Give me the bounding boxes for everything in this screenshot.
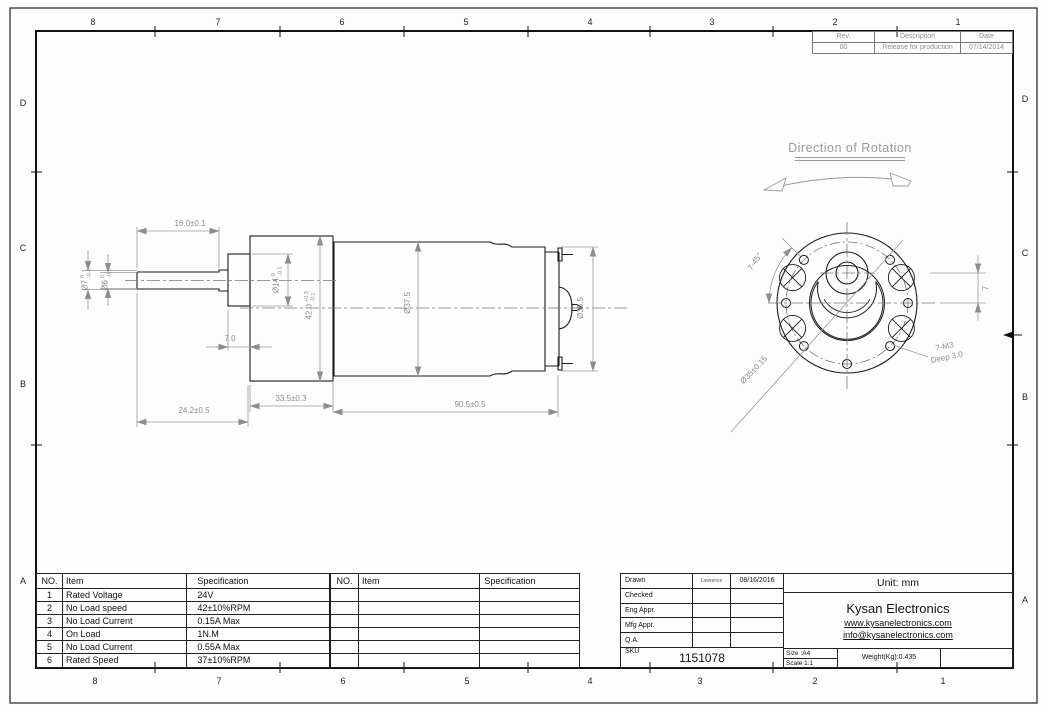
spec-no: 1: [37, 589, 63, 601]
svg-text:Ø37.5: Ø37.5: [403, 292, 412, 314]
svg-text:Ø35±0.15: Ø35±0.15: [738, 354, 769, 386]
table-row-empty: [331, 641, 579, 654]
grid-row-right: A: [1022, 595, 1028, 605]
approval-label: Checked: [621, 589, 693, 603]
svg-text:0: 0: [80, 275, 86, 278]
direction-underline: [795, 158, 905, 161]
dim-shaft-length: 16.0±0.1: [174, 219, 206, 228]
spec-header-item: Item: [359, 574, 480, 588]
spec-no: 5: [37, 641, 63, 653]
spec-header-spec: Specification: [480, 574, 579, 588]
approval-label: Eng Appr.: [621, 604, 693, 618]
dim-bolt-circle: Ø35±0.15: [738, 354, 769, 386]
direction-of-rotation: Direction of Rotation: [764, 141, 912, 191]
spec-value: 0.55A Max: [187, 641, 329, 653]
dim-boss-diameter: Ø14 0 -0.1: [271, 267, 284, 294]
svg-text:Ø7: Ø7: [81, 279, 90, 290]
approval-name: [693, 633, 731, 647]
front-view: [768, 222, 935, 390]
approval-row: Checked: [621, 589, 783, 604]
svg-text:-0.1: -0.1: [107, 269, 113, 278]
approval-row: Q.A.: [621, 633, 783, 648]
table-row-empty: [331, 602, 579, 615]
spec-item: No Load Current: [63, 615, 187, 627]
approval-name: Lawrence: [693, 574, 731, 588]
dim-front-length: 24.2±0.5: [178, 406, 210, 415]
grid-col-top: 3: [709, 17, 714, 27]
revision-header-date: Date: [961, 32, 1012, 42]
side-view: [125, 236, 630, 381]
dim-tap-callout: 7-M3 Deep 3.0: [928, 339, 964, 365]
revision-table: Rev. Description Date 00 Release for pro…: [812, 31, 1013, 54]
dim-hole-pattern-angle: 7-45°: [746, 251, 764, 272]
approval-label: Q.A.: [621, 633, 693, 647]
rotation-arrow-arc: [768, 177, 909, 189]
revision-header-rev: Rev.: [813, 32, 875, 42]
spec-value: 37±10%RPM: [187, 654, 329, 667]
company-email-link[interactable]: info@kysanelectronics.com: [843, 630, 953, 640]
svg-text:-0.1: -0.1: [278, 267, 284, 276]
table-row: 5 No Load Current 0.55A Max: [37, 641, 329, 654]
spec-table: NO. Item Specification 1 Rated Voltage 2…: [36, 573, 330, 668]
spec-value: 42±10%RPM: [187, 602, 329, 614]
spec-value: 1N.M: [187, 628, 329, 640]
svg-text:0: 0: [271, 273, 277, 276]
title-block: Drawn Lawrence 08/16/2016 Checked Eng Ap…: [620, 573, 1013, 668]
spec-header-no: NO.: [331, 574, 359, 588]
approval-name: [693, 589, 731, 603]
grid-row-left: D: [20, 98, 27, 108]
grid-col-bottom: 8: [92, 676, 97, 686]
grid-col-bottom: 6: [340, 676, 345, 686]
spec-header-item: Item: [63, 574, 187, 588]
company-website-link[interactable]: www.kysanelectronics.com: [844, 618, 952, 628]
empty-cell: [941, 649, 1012, 667]
approval-date: 08/16/2016: [731, 577, 783, 584]
table-row: 3 No Load Current 0.15A Max: [37, 615, 329, 628]
title-block-approvals: Drawn Lawrence 08/16/2016 Checked Eng Ap…: [621, 574, 784, 667]
dim-gearbox-diameter: 42.0 +0.3 -0.1: [304, 291, 317, 319]
sheet-scale: Scale 1:1: [784, 659, 837, 668]
grid-col-bottom: 1: [940, 676, 945, 686]
svg-text:Ø14: Ø14: [272, 277, 281, 293]
approval-label: Mfg Appr.: [621, 618, 693, 632]
grid-col-bottom: 2: [812, 676, 817, 686]
drawing-sheet: 8 7 6 5 4 3 2 1 8 7 6 5 4 3 2 1 D C B A …: [0, 0, 1048, 712]
grid-row-right: D: [1022, 94, 1029, 104]
spec-header-spec: Specification: [187, 574, 329, 588]
spec-item: Rated Voltage: [63, 589, 187, 601]
spec-value: 24V: [187, 589, 329, 601]
svg-text:Ø6: Ø6: [101, 279, 110, 290]
table-row-empty: [331, 615, 579, 628]
side-view-dimensions: 16.0±0.1 Ø7 0 -0.3 Ø6 0 -0.1 Ø14 0 -0.1 …: [80, 219, 598, 427]
direction-of-rotation-label: Direction of Rotation: [788, 141, 912, 155]
revision-header-description: Description: [875, 32, 961, 42]
dim-motor-diameter: Ø37.5: [403, 292, 412, 314]
spec-table-empty: NO. Item Specification: [330, 573, 580, 668]
approval-name: [693, 618, 731, 632]
dim-gearbox-length: 33.5±0.3: [275, 394, 307, 403]
centering-mark-arrow: [1003, 332, 1013, 339]
approval-label: Drawn: [621, 574, 693, 588]
dim-motor-length: 90.5±0.5: [454, 400, 486, 409]
gearbox-body: [250, 236, 333, 381]
motor-body: [334, 242, 490, 376]
grid-col-top: 2: [832, 17, 837, 27]
svg-text:+0.3: +0.3: [304, 291, 310, 302]
grid-col-bottom: 3: [697, 676, 702, 686]
company-name: Kysan Electronics: [846, 601, 949, 616]
revision-description: Release for production: [875, 43, 961, 54]
grid-row-left: B: [20, 379, 26, 389]
grid-col-bottom: 4: [587, 676, 592, 686]
grid-col-top: 1: [955, 17, 960, 27]
grid-row-right: B: [1022, 392, 1028, 402]
spec-value: 0.15A Max: [187, 615, 329, 627]
front-view-dimensions: 7-45° Ø35±0.15 7-M3 Deep 3.0 7: [731, 238, 990, 432]
revision-rev: 00: [813, 43, 875, 54]
dim-endcap-diameter: Ø35.5: [576, 297, 585, 319]
svg-text:0: 0: [100, 275, 106, 278]
table-row: 2 No Load speed 42±10%RPM: [37, 602, 329, 615]
table-row-empty: [331, 589, 579, 602]
table-row-empty: [331, 654, 579, 667]
rotation-arrow-right: [890, 173, 911, 186]
motor-endcap: [545, 252, 559, 366]
spec-item: On Load: [63, 628, 187, 640]
weight-label: Weight(Kg):0.435: [838, 649, 941, 667]
grid-col-top: 6: [339, 17, 344, 27]
spec-no: 3: [37, 615, 63, 627]
grid-col-bottom: 7: [216, 676, 221, 686]
svg-text:-0.3: -0.3: [87, 269, 93, 278]
spec-header-no: NO.: [37, 574, 63, 588]
spec-no: 2: [37, 602, 63, 614]
svg-text:7: 7: [981, 285, 990, 290]
revision-date: 07/14/2014: [961, 43, 1012, 54]
dim-shaft-offset: 7: [981, 285, 990, 290]
dim-boss-length: 7.0: [224, 334, 236, 343]
spec-item: Rated Speed: [63, 654, 187, 667]
grid-col-top: 7: [215, 17, 220, 27]
front-boss: [228, 254, 250, 306]
size-scale-cell: Size :A4 Scale 1:1: [784, 649, 838, 667]
table-row: 4 On Load 1N.M: [37, 628, 329, 641]
svg-text:7-45°: 7-45°: [746, 251, 764, 272]
motor-rear-section: [490, 242, 545, 376]
dim-shaft-dia-outer: Ø7 0 -0.3: [80, 269, 93, 291]
grid-row-right: C: [1022, 248, 1029, 258]
grid-row-left: C: [20, 243, 27, 253]
motor-terminals: [558, 248, 573, 370]
sheet-size: Size :A4: [784, 649, 837, 659]
grid-col-top: 5: [463, 17, 468, 27]
table-row: 1 Rated Voltage 24V: [37, 589, 329, 602]
approval-row: Eng Appr.: [621, 604, 783, 619]
table-row: 6 Rated Speed 37±10%RPM: [37, 654, 329, 667]
svg-text:-0.1: -0.1: [311, 293, 317, 302]
title-block-company: Unit: mm Kysan Electronics www.kysanelec…: [784, 574, 1012, 667]
svg-text:Deep 3.0: Deep 3.0: [930, 349, 964, 365]
spec-item: No Load Current: [63, 641, 187, 653]
spec-no: 4: [37, 628, 63, 640]
rotation-arrow-left: [764, 178, 786, 191]
grid-col-bottom: 5: [464, 676, 469, 686]
dim-shaft-dia-tip: Ø6 0 -0.1: [100, 269, 113, 291]
unit-label: Unit: mm: [784, 574, 1012, 593]
svg-text:Ø35.5: Ø35.5: [576, 297, 585, 319]
approval-name: [693, 604, 731, 618]
grid-col-top: 8: [90, 17, 95, 27]
approval-row: Drawn Lawrence 08/16/2016: [621, 574, 783, 589]
sku-value: 1151078: [621, 651, 783, 665]
grid-row-left: A: [20, 576, 26, 586]
table-row-empty: [331, 628, 579, 641]
spec-item: No Load speed: [63, 602, 187, 614]
approval-row: Mfg Appr.: [621, 618, 783, 633]
sku-row: SKU 1151078: [621, 648, 783, 667]
grid-col-top: 4: [587, 17, 592, 27]
svg-text:42.0: 42.0: [305, 303, 314, 319]
spec-no: 6: [37, 654, 63, 667]
